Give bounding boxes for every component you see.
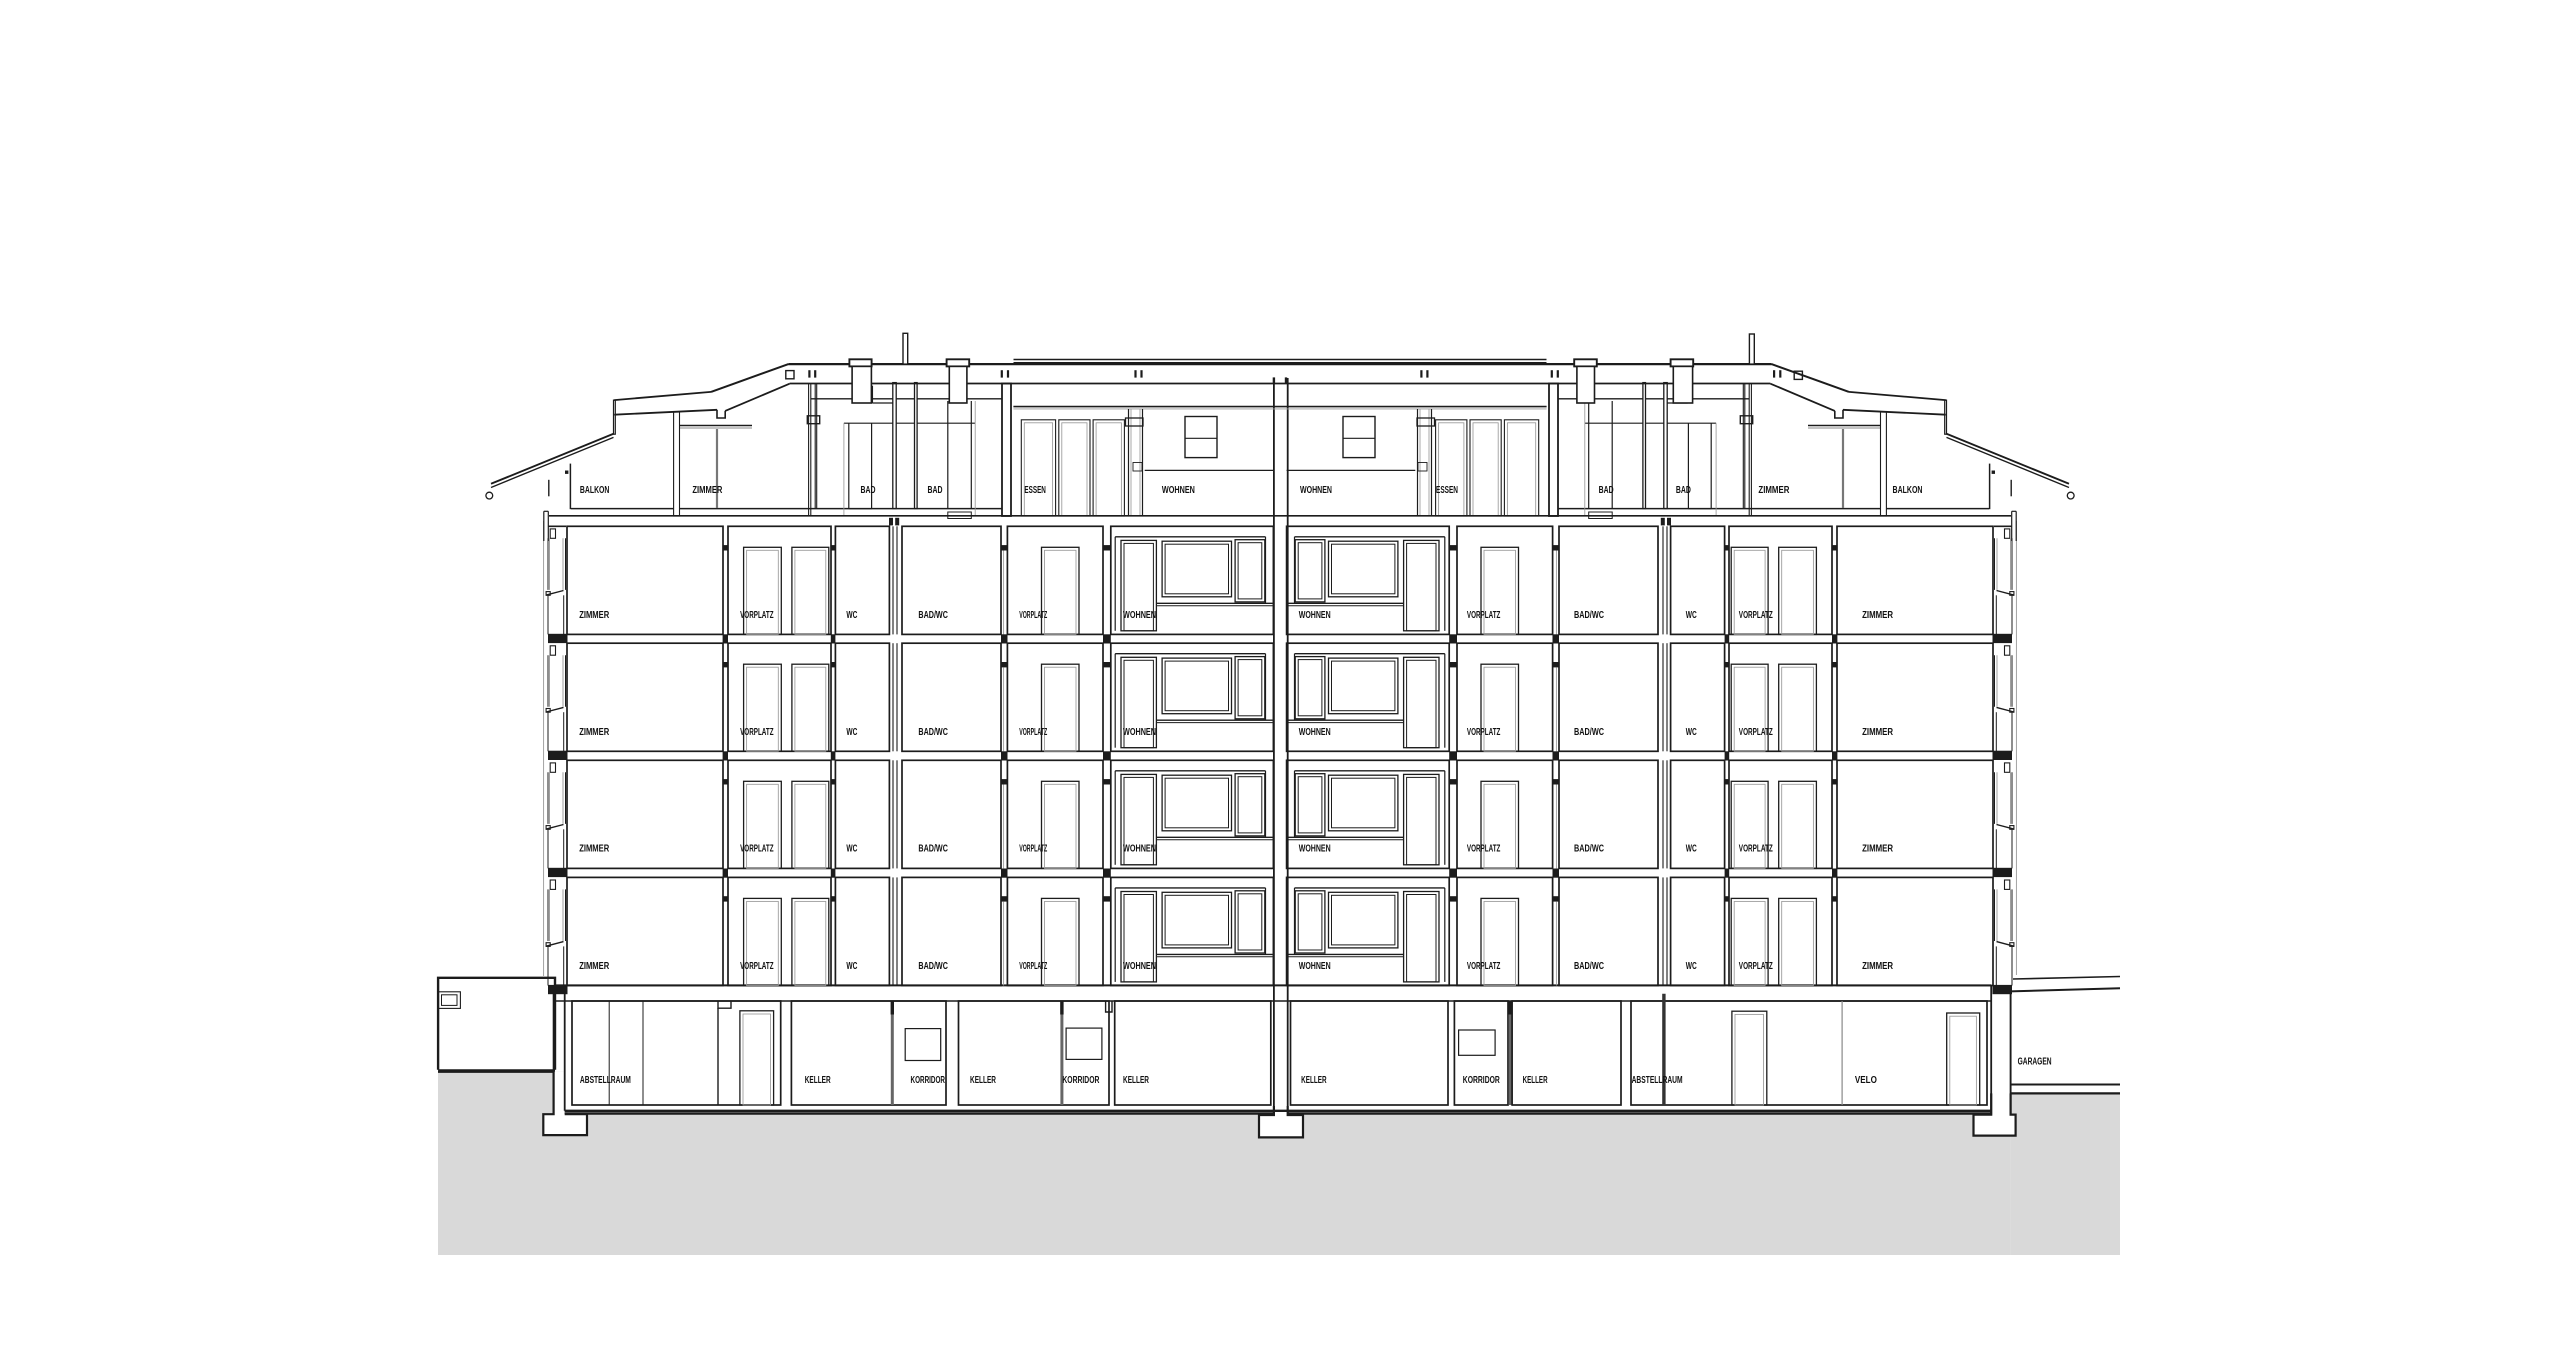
svg-text:WC: WC: [1686, 610, 1697, 621]
svg-text:BAD: BAD: [928, 485, 943, 496]
svg-text:VORPLATZ: VORPLATZ: [1739, 844, 1773, 855]
svg-text:ZIMMER: ZIMMER: [1862, 961, 1893, 972]
svg-text:KORRIDOR: KORRIDOR: [911, 1075, 946, 1086]
svg-text:WC: WC: [1686, 961, 1697, 972]
svg-text:VORPLATZ: VORPLATZ: [1019, 961, 1047, 972]
svg-text:VORPLATZ: VORPLATZ: [1019, 727, 1047, 738]
svg-text:KELLER: KELLER: [970, 1075, 996, 1086]
svg-text:WOHNEN: WOHNEN: [1123, 844, 1156, 855]
svg-text:ZIMMER: ZIMMER: [1862, 610, 1893, 621]
svg-text:WOHNEN: WOHNEN: [1299, 961, 1331, 972]
svg-text:ZIMMER: ZIMMER: [1862, 844, 1893, 855]
svg-text:KELLER: KELLER: [1301, 1075, 1327, 1086]
svg-text:VORPLATZ: VORPLATZ: [740, 961, 774, 972]
svg-text:ZIMMER: ZIMMER: [579, 610, 609, 621]
svg-text:ABSTELLRAUM: ABSTELLRAUM: [1632, 1075, 1683, 1086]
svg-text:VORPLATZ: VORPLATZ: [1467, 727, 1501, 738]
svg-text:KORRIDOR: KORRIDOR: [1463, 1075, 1500, 1086]
svg-text:VORPLATZ: VORPLATZ: [1019, 610, 1047, 621]
svg-text:BAD/WC: BAD/WC: [918, 844, 948, 855]
svg-text:VORPLATZ: VORPLATZ: [740, 727, 774, 738]
svg-text:BAD: BAD: [1599, 485, 1614, 496]
svg-text:KELLER: KELLER: [1523, 1075, 1548, 1086]
svg-text:BALKON: BALKON: [1893, 485, 1923, 496]
svg-text:BAD: BAD: [861, 485, 876, 496]
svg-text:ZIMMER: ZIMMER: [579, 961, 609, 972]
svg-text:WOHNEN: WOHNEN: [1123, 961, 1156, 972]
svg-text:KELLER: KELLER: [1123, 1075, 1149, 1086]
svg-text:WOHNEN: WOHNEN: [1299, 610, 1331, 621]
svg-text:WOHNEN: WOHNEN: [1123, 727, 1156, 738]
svg-text:WC: WC: [1686, 844, 1697, 855]
svg-text:VORPLATZ: VORPLATZ: [1739, 961, 1773, 972]
svg-text:ZIMMER: ZIMMER: [579, 727, 609, 738]
svg-text:WC: WC: [846, 844, 857, 855]
svg-text:WOHNEN: WOHNEN: [1299, 844, 1331, 855]
svg-text:ZIMMER: ZIMMER: [692, 485, 722, 496]
svg-text:WC: WC: [1686, 727, 1697, 738]
svg-text:VORPLATZ: VORPLATZ: [1467, 610, 1501, 621]
svg-text:BAD/WC: BAD/WC: [1574, 844, 1604, 855]
svg-text:GARAGEN: GARAGEN: [2018, 1057, 2052, 1068]
svg-text:WC: WC: [846, 961, 857, 972]
svg-text:ESSEN: ESSEN: [1436, 485, 1458, 496]
svg-text:KORRIDOR: KORRIDOR: [1062, 1075, 1099, 1086]
svg-text:ZIMMER: ZIMMER: [1758, 485, 1789, 496]
svg-text:WOHNEN: WOHNEN: [1299, 727, 1331, 738]
svg-text:ZIMMER: ZIMMER: [1862, 727, 1893, 738]
svg-text:ZIMMER: ZIMMER: [579, 844, 609, 855]
svg-text:BAD/WC: BAD/WC: [1574, 727, 1604, 738]
svg-text:VORPLATZ: VORPLATZ: [740, 610, 774, 621]
svg-text:VORPLATZ: VORPLATZ: [740, 844, 774, 855]
svg-text:WOHNEN: WOHNEN: [1300, 485, 1332, 496]
svg-text:WC: WC: [846, 610, 857, 621]
svg-text:BAD/WC: BAD/WC: [918, 727, 948, 738]
svg-text:VORPLATZ: VORPLATZ: [1019, 844, 1047, 855]
svg-text:ESSEN: ESSEN: [1024, 485, 1046, 496]
svg-text:VELO: VELO: [1855, 1075, 1877, 1086]
svg-text:ABSTELLRAUM: ABSTELLRAUM: [580, 1075, 631, 1086]
svg-text:WOHNEN: WOHNEN: [1123, 610, 1156, 621]
svg-text:BAD/WC: BAD/WC: [1574, 610, 1604, 621]
svg-text:VORPLATZ: VORPLATZ: [1467, 961, 1501, 972]
svg-text:BAD: BAD: [1676, 485, 1691, 496]
svg-text:WOHNEN: WOHNEN: [1162, 485, 1195, 496]
svg-text:BAD/WC: BAD/WC: [1574, 961, 1604, 972]
svg-text:VORPLATZ: VORPLATZ: [1739, 727, 1773, 738]
svg-text:VORPLATZ: VORPLATZ: [1739, 610, 1773, 621]
svg-text:WC: WC: [846, 727, 857, 738]
svg-text:KELLER: KELLER: [805, 1075, 831, 1086]
svg-text:BAD/WC: BAD/WC: [918, 961, 948, 972]
svg-text:VORPLATZ: VORPLATZ: [1467, 844, 1501, 855]
svg-text:BAD/WC: BAD/WC: [918, 610, 948, 621]
svg-text:BALKON: BALKON: [580, 485, 610, 496]
